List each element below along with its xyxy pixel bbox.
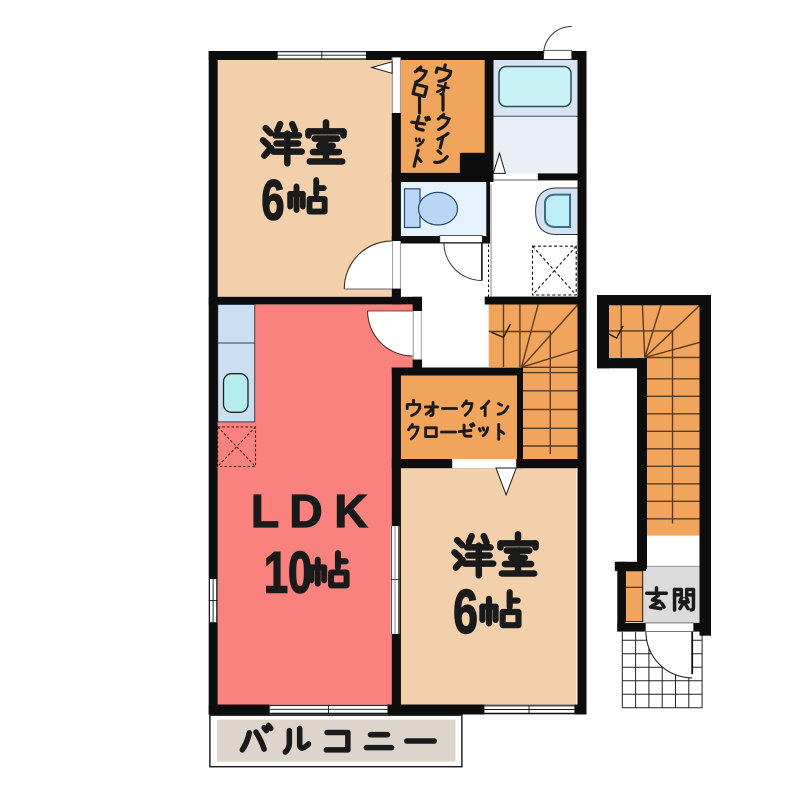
svg-text:6: 6	[453, 578, 478, 647]
svg-text:K: K	[334, 485, 367, 537]
svg-text:6: 6	[261, 168, 284, 232]
svg-text:10: 10	[264, 540, 312, 604]
svg-text:D: D	[289, 485, 322, 537]
svg-text:L: L	[251, 485, 279, 537]
